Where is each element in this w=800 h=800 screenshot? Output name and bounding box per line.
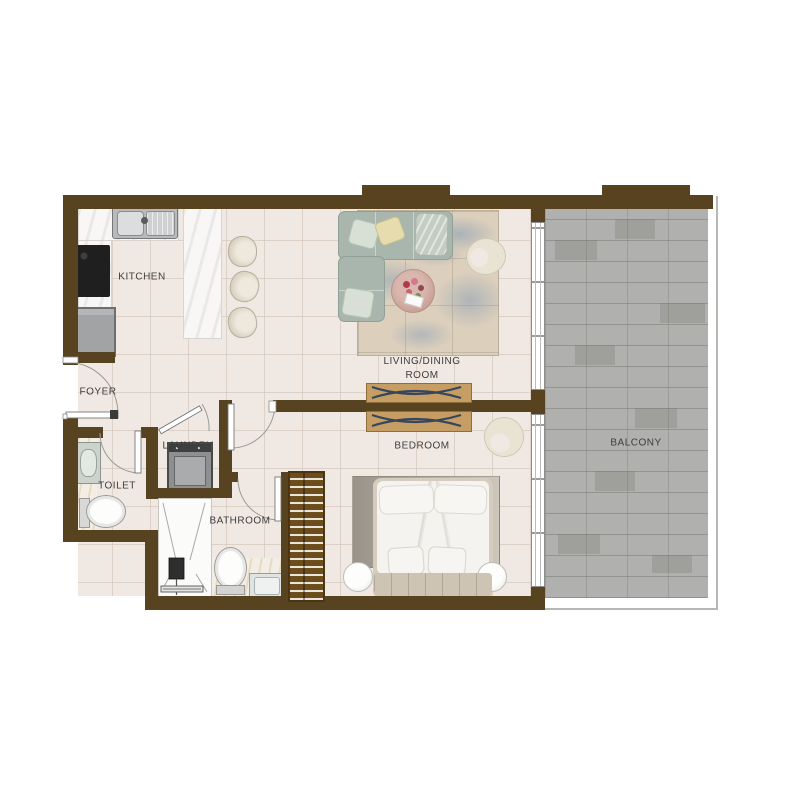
cooktop bbox=[75, 245, 110, 297]
sofa-chaise-blanket bbox=[415, 213, 447, 255]
wall-kitchen-foyer-stub bbox=[63, 352, 115, 363]
balcony-tile-patch bbox=[660, 303, 705, 323]
wall-east-bottom bbox=[531, 585, 545, 610]
flower bbox=[411, 278, 418, 285]
nightstand bbox=[343, 562, 373, 592]
wall-top bbox=[63, 195, 713, 209]
living-window bbox=[531, 222, 545, 390]
flower bbox=[403, 281, 410, 288]
armchair-seat bbox=[469, 247, 489, 268]
bathroom-wc bbox=[214, 547, 247, 589]
room-label-laundry: LAUNDRY bbox=[162, 441, 213, 452]
wall-vestibule-bath bbox=[219, 472, 238, 482]
room-label-kitchen: KITCHEN bbox=[118, 272, 165, 283]
kitchen-sink bbox=[112, 206, 178, 239]
room-label-balcony: BALCONY bbox=[610, 438, 661, 449]
shower-floor bbox=[158, 498, 212, 598]
balcony-tile-patch bbox=[575, 345, 615, 365]
floor-plan: KITCHEN FOYER TOILET LAUNDRY BATHROOM LI… bbox=[0, 0, 800, 800]
wall-toilet-bottom bbox=[63, 530, 158, 542]
balcony-tile-patch bbox=[558, 534, 600, 554]
wall-left-upper bbox=[63, 195, 78, 365]
wardrobe bbox=[288, 471, 325, 602]
wall-east-mid bbox=[531, 388, 545, 414]
washer-drum bbox=[174, 456, 206, 486]
room-label-living-dining: LIVING/DINING ROOM bbox=[367, 355, 477, 383]
balcony-tile-patch bbox=[615, 219, 655, 239]
sink-bowl bbox=[117, 211, 144, 236]
bed-pillow-small bbox=[387, 546, 425, 576]
sink-basin bbox=[254, 577, 280, 595]
bathroom-wc-tank bbox=[216, 585, 245, 595]
balcony-tile-patch bbox=[555, 240, 597, 260]
bar-stool bbox=[228, 236, 257, 267]
balcony-tile-patch bbox=[652, 555, 692, 573]
balcony-tile-patch bbox=[635, 408, 677, 428]
bed-pillow-small bbox=[427, 546, 466, 576]
toilet-basin bbox=[76, 442, 101, 484]
coffee-table bbox=[391, 269, 435, 313]
room-label-foyer: FOYER bbox=[80, 387, 117, 398]
refrigerator bbox=[75, 307, 116, 357]
wall-top-pilaster-living bbox=[362, 185, 450, 196]
wall-laundry-right bbox=[219, 400, 232, 498]
bedroom-window bbox=[531, 414, 545, 587]
bed-headboard bbox=[374, 573, 492, 598]
wall-toilet-top bbox=[63, 427, 103, 438]
room-label-bathroom: BATHROOM bbox=[209, 516, 270, 527]
balcony-railing-right bbox=[708, 196, 718, 610]
basin-bowl bbox=[80, 449, 97, 477]
wall-laundry-bottom bbox=[146, 488, 230, 498]
balcony-railing-bottom bbox=[545, 598, 716, 610]
toilet-wc bbox=[86, 495, 126, 528]
kitchen-island bbox=[183, 205, 222, 339]
bed-pillow-top bbox=[434, 484, 488, 515]
bed-pillow-top bbox=[379, 484, 435, 515]
tv-console-living-side bbox=[366, 383, 472, 403]
room-label-bedroom: BEDROOM bbox=[394, 441, 449, 452]
armchair-seat bbox=[487, 430, 514, 456]
room-label-toilet: TOILET bbox=[98, 481, 136, 492]
flower bbox=[418, 285, 424, 291]
balcony-tile-patch bbox=[595, 471, 635, 491]
wall-bottom bbox=[145, 596, 545, 610]
sink-faucet bbox=[141, 217, 148, 224]
tv-console-bedroom-side bbox=[366, 411, 472, 432]
wall-east-top bbox=[531, 195, 545, 222]
sink-drainboard bbox=[146, 211, 175, 236]
sofa-pillow bbox=[341, 287, 375, 319]
wall-top-pilaster-balcony bbox=[602, 185, 690, 196]
